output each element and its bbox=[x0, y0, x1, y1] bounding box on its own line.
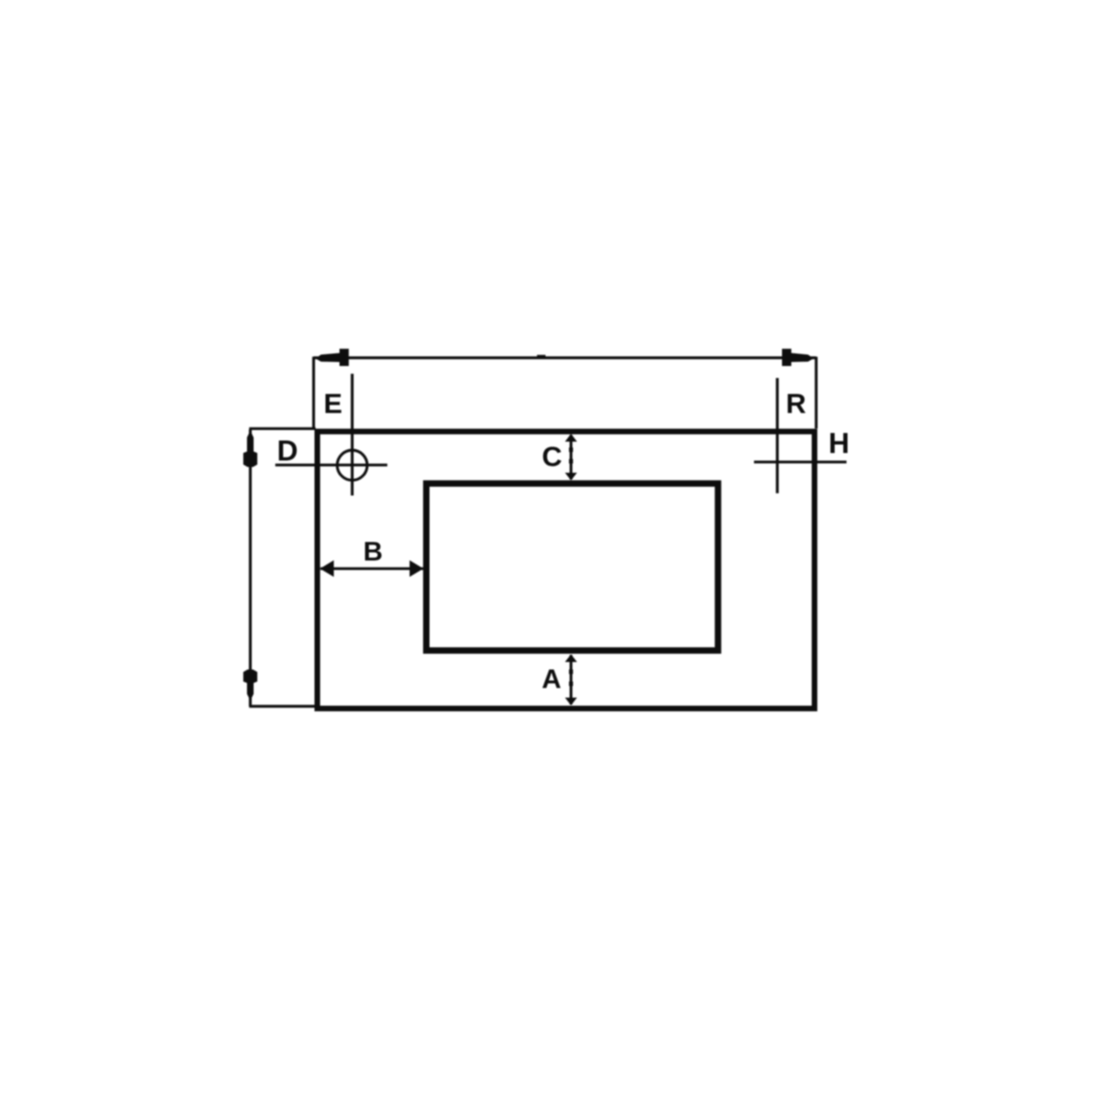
svg-text:A: A bbox=[542, 664, 562, 694]
svg-text:B: B bbox=[363, 537, 383, 567]
svg-text:E: E bbox=[324, 388, 343, 419]
svg-text:H: H bbox=[829, 428, 850, 460]
svg-text:R: R bbox=[786, 388, 806, 419]
svg-text:C: C bbox=[542, 441, 562, 472]
svg-text:D: D bbox=[277, 436, 298, 468]
